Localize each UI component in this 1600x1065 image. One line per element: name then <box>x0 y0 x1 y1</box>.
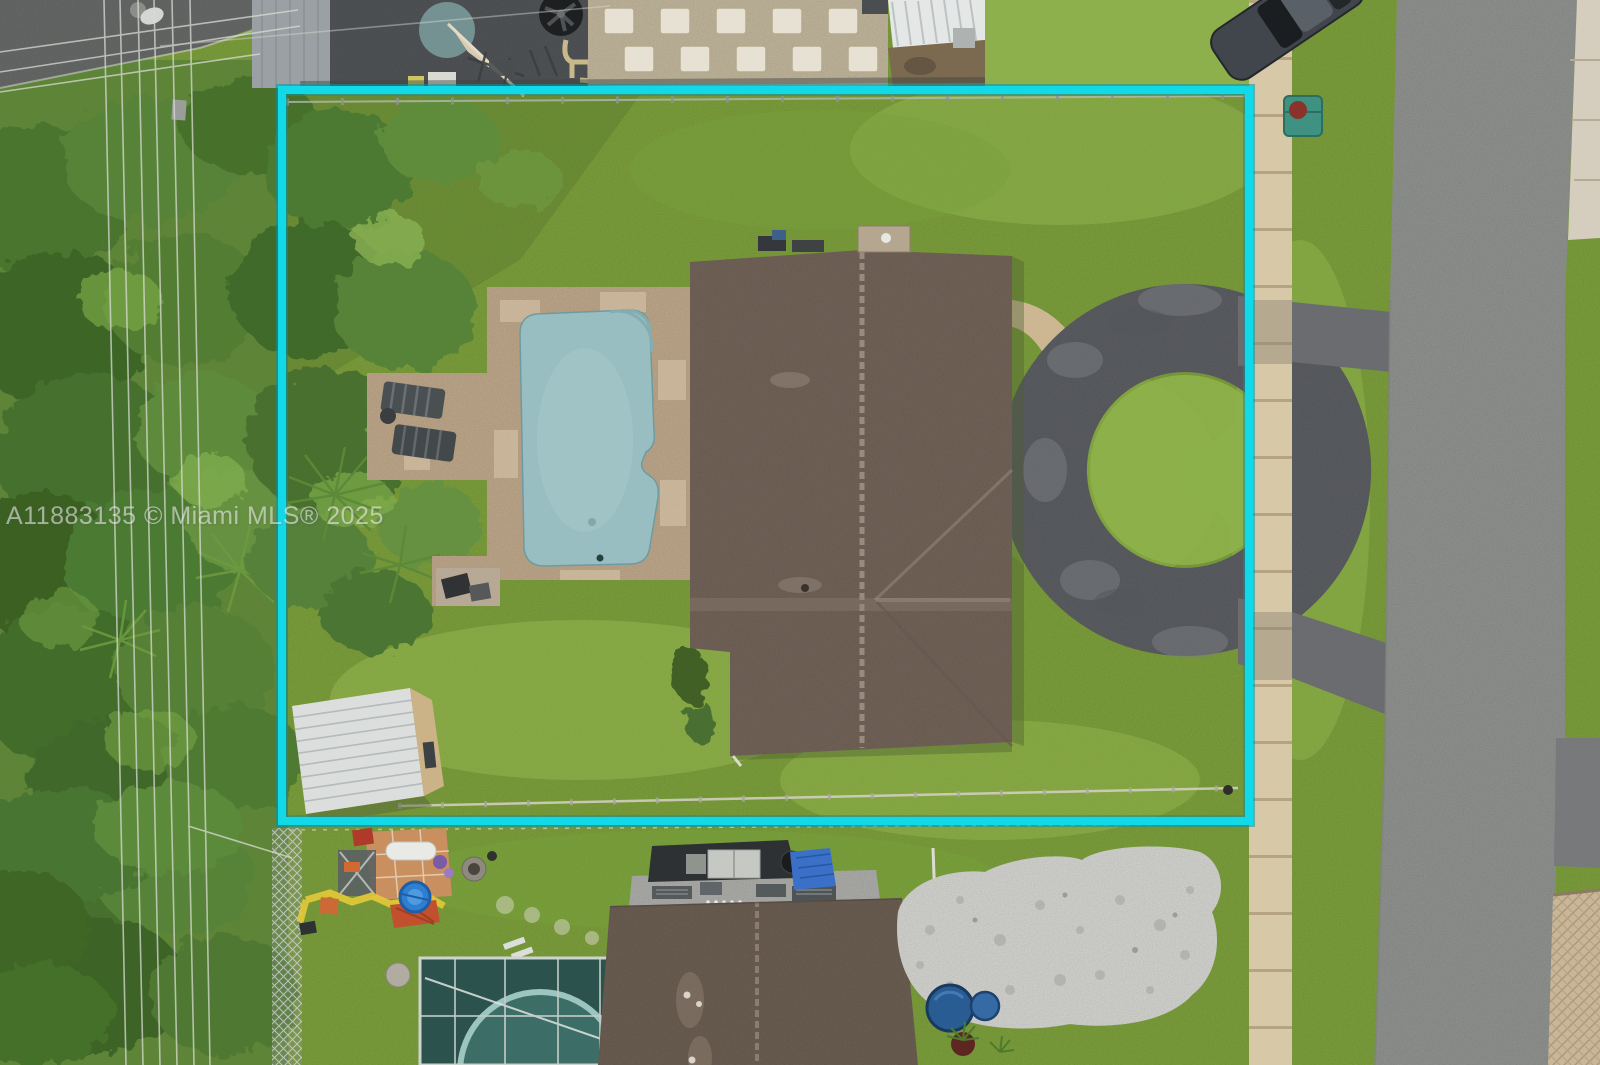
neighbor-lawn-top-right <box>985 0 1250 90</box>
main-house-roof <box>690 250 1012 756</box>
main-house <box>690 226 1024 766</box>
red-toy <box>352 828 374 847</box>
pool-drain <box>588 518 596 526</box>
street-right <box>1205 0 1600 1065</box>
grill <box>862 0 888 14</box>
toy <box>444 868 454 878</box>
ac-unit <box>953 28 975 48</box>
chain-link-fence <box>272 828 302 1065</box>
white-shed-roof <box>888 0 985 86</box>
grill <box>436 568 500 606</box>
neighbor-driveway-pavers <box>1548 890 1600 1065</box>
roof-stain <box>778 577 822 593</box>
pool-highlight <box>537 348 633 532</box>
street-sidewalk <box>1249 0 1292 1065</box>
toy <box>433 855 447 869</box>
storage-shed <box>290 688 444 824</box>
screened-pool-enclosure <box>386 958 620 1065</box>
dark-object <box>1223 785 1233 795</box>
neighbor-building-top <box>252 0 1250 96</box>
aerial-photo: A11883135 © Miami MLS® 2025 <box>0 0 1600 1065</box>
mls-watermark: A11883135 © Miami MLS® 2025 <box>6 502 384 531</box>
driveway-apron-north <box>1292 302 1392 372</box>
fence-shadow <box>300 80 985 84</box>
street-road <box>1375 0 1577 1065</box>
pool-cleaner <box>597 555 604 562</box>
roof-stain <box>770 372 810 388</box>
dark-object <box>487 851 497 861</box>
trash-bin <box>1284 96 1322 136</box>
orange-mat <box>319 897 339 915</box>
bathtub <box>386 842 436 860</box>
slide-frame <box>338 850 376 896</box>
aerial-photo-canvas <box>0 0 1600 1065</box>
neighbor-driveway-dark <box>1554 738 1600 868</box>
fire-pit <box>386 963 410 987</box>
